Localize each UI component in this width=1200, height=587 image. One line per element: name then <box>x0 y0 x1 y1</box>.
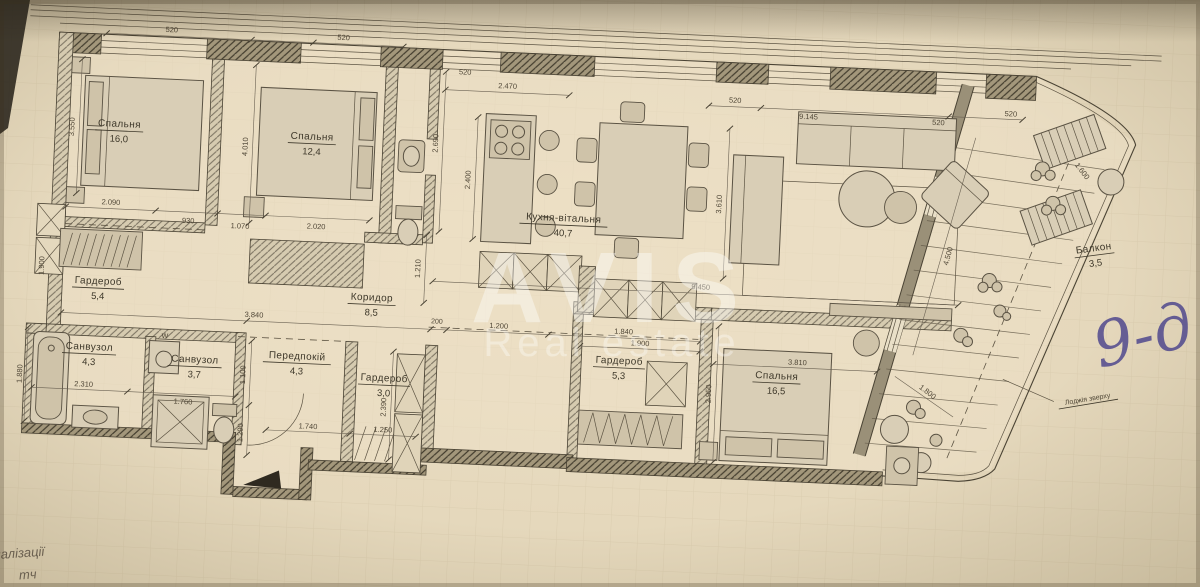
dim-label: 930 <box>182 216 195 226</box>
dim-label: 2.950 <box>703 384 713 403</box>
room-bedroom1-name: Спальня <box>98 118 141 131</box>
room-corridor-name: Коридор <box>350 292 393 305</box>
room-wardrobe30-area: 3,0 <box>377 388 391 400</box>
dim-label: 200 <box>431 318 443 326</box>
pouf <box>853 329 880 356</box>
dim-label: 3.810 <box>788 358 807 368</box>
corridor-closet <box>248 239 364 288</box>
room-bedroom3-area: 16,5 <box>767 386 786 398</box>
room-bedroom2-area: 12,4 <box>302 146 321 158</box>
dim-label: 4.010 <box>240 137 250 156</box>
room-wardrobe54-name: Гардероб <box>75 274 123 288</box>
room-wardrobe53-area: 5,3 <box>612 371 626 383</box>
dim-label: 2.470 <box>498 81 517 91</box>
room-wardrobe30-name: Гардероб <box>360 371 408 385</box>
room-corridor-area: 8,5 <box>364 307 378 319</box>
dim-label: 2.090 <box>101 197 120 207</box>
room-bathroom1-name: Санвузол <box>65 341 113 354</box>
dim-label: 1.210 <box>413 259 423 278</box>
wardrobe-54-rail <box>59 228 143 270</box>
dim-label: 1.900 <box>37 256 47 275</box>
watermark: AVIS Real estate <box>471 232 753 365</box>
floor-plan-canvas: 520 520 520 2.470 520 9.145 520 520 3.55… <box>0 0 1200 587</box>
room-hallway-area: 4,3 <box>290 366 304 378</box>
dim-label: 520 <box>1004 109 1017 119</box>
corner-note-line2: тч <box>18 566 37 582</box>
bedroom1-furniture <box>66 57 204 209</box>
dim-label: 520 <box>932 118 945 128</box>
dim-label: 2.400 <box>463 170 473 189</box>
room-balcony-area: 3,5 <box>1088 257 1103 270</box>
room-bathroom2-name: Санвузол <box>171 354 219 367</box>
dim-label: 2.690 <box>431 134 441 153</box>
dim-label: 2.390 <box>379 398 389 417</box>
dim-label: 520 <box>729 96 742 106</box>
terrace-drain <box>893 457 910 474</box>
toilet-tank <box>212 403 237 416</box>
dim-label: 1.250 <box>373 425 392 435</box>
dim-label: 3.840 <box>244 310 263 320</box>
dim-label: 1.760 <box>173 397 192 407</box>
floor-plan-photo: 520 520 520 2.470 520 9.145 520 520 3.55… <box>0 0 1200 587</box>
dim-label: 3.610 <box>714 195 724 214</box>
dim-label: 2.020 <box>306 222 325 232</box>
dim-label: 520 <box>459 67 472 77</box>
room-bedroom3-name: Спальня <box>755 370 798 383</box>
dim-label: 1.740 <box>298 421 317 431</box>
room-bedroom2-name: Спальня <box>290 131 333 144</box>
dim-label: 3.550 <box>67 117 77 136</box>
dim-label: 1.290 <box>235 423 245 442</box>
room-bedroom1-area: 16,0 <box>109 133 128 145</box>
bar-stool <box>537 174 558 195</box>
photo-top-shadow <box>0 0 1200 42</box>
dim-label: 9.145 <box>799 112 818 122</box>
dim-label: 1.880 <box>15 364 25 383</box>
room-bathroom1-area: 4,3 <box>82 356 96 368</box>
washer-label: W <box>161 333 168 340</box>
bar-stool <box>539 130 560 151</box>
dim-label: 1.070 <box>230 221 249 231</box>
room-wardrobe54-area: 5,4 <box>91 291 105 303</box>
dim-label: 2.310 <box>74 379 93 389</box>
dining-table <box>595 123 688 239</box>
room-bathroom2-area: 3,7 <box>187 369 201 381</box>
dim-label: 1.100 <box>238 365 248 384</box>
watermark-subtitle: Real estate <box>483 321 740 365</box>
